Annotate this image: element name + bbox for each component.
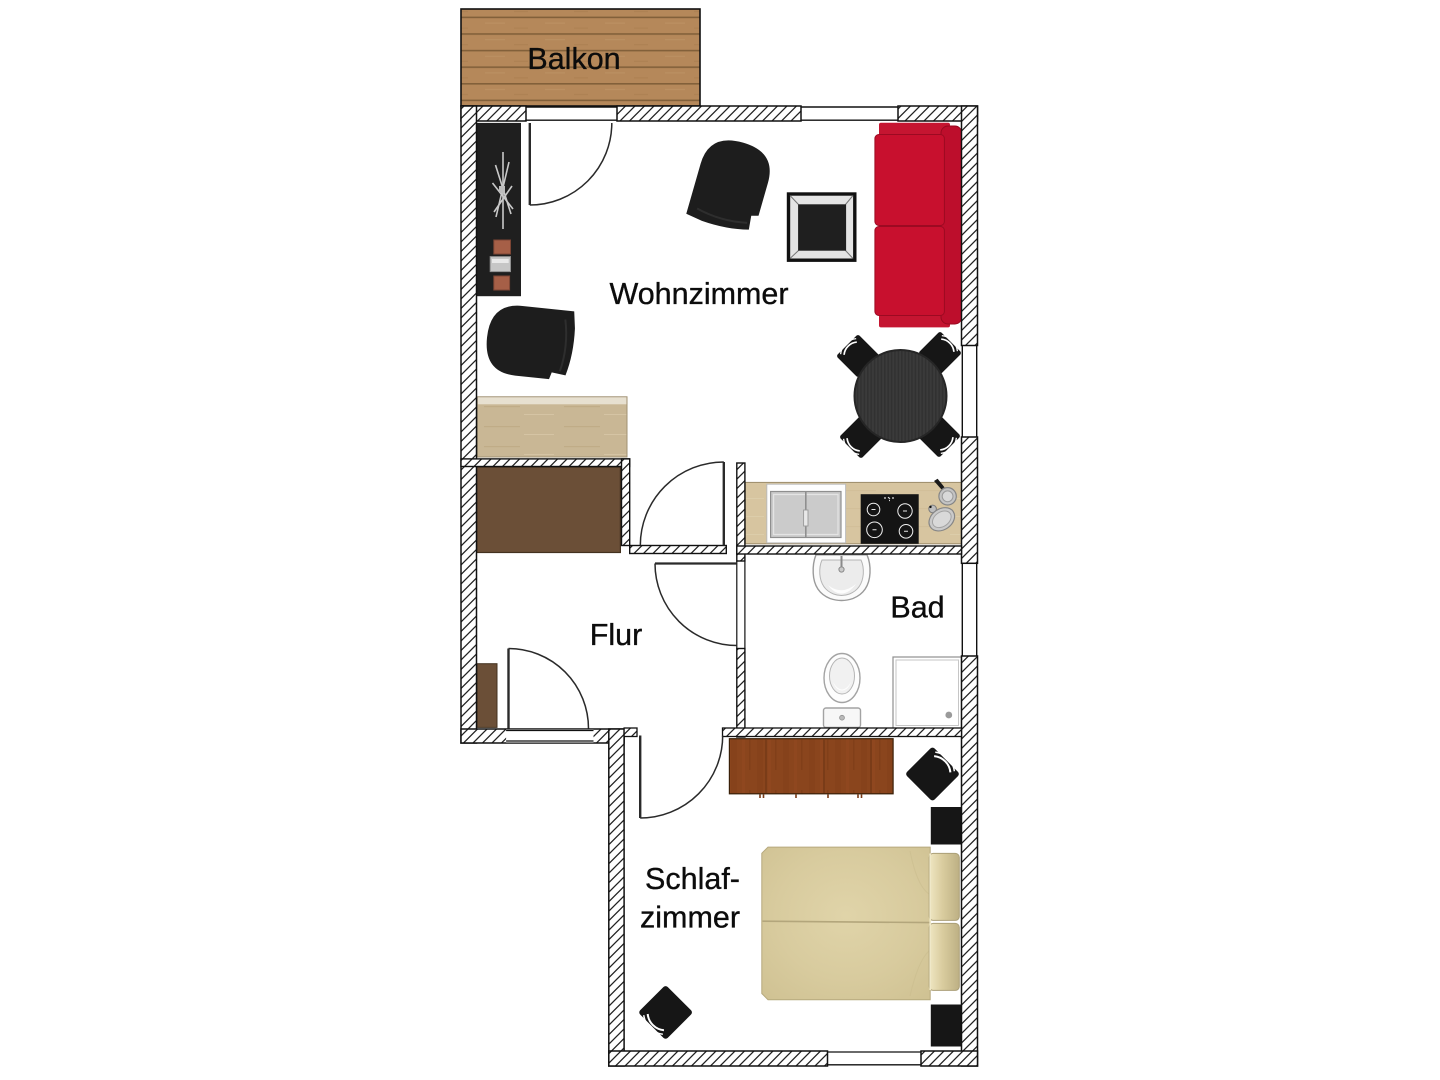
- svg-text:Schlaf-: Schlaf-: [645, 862, 740, 896]
- svg-text:Flur: Flur: [590, 618, 643, 652]
- svg-text:Bad: Bad: [890, 591, 944, 625]
- svg-text:Wohnzimmer: Wohnzimmer: [609, 277, 788, 311]
- svg-text:Balkon: Balkon: [527, 42, 620, 76]
- svg-text:zimmer: zimmer: [640, 901, 740, 935]
